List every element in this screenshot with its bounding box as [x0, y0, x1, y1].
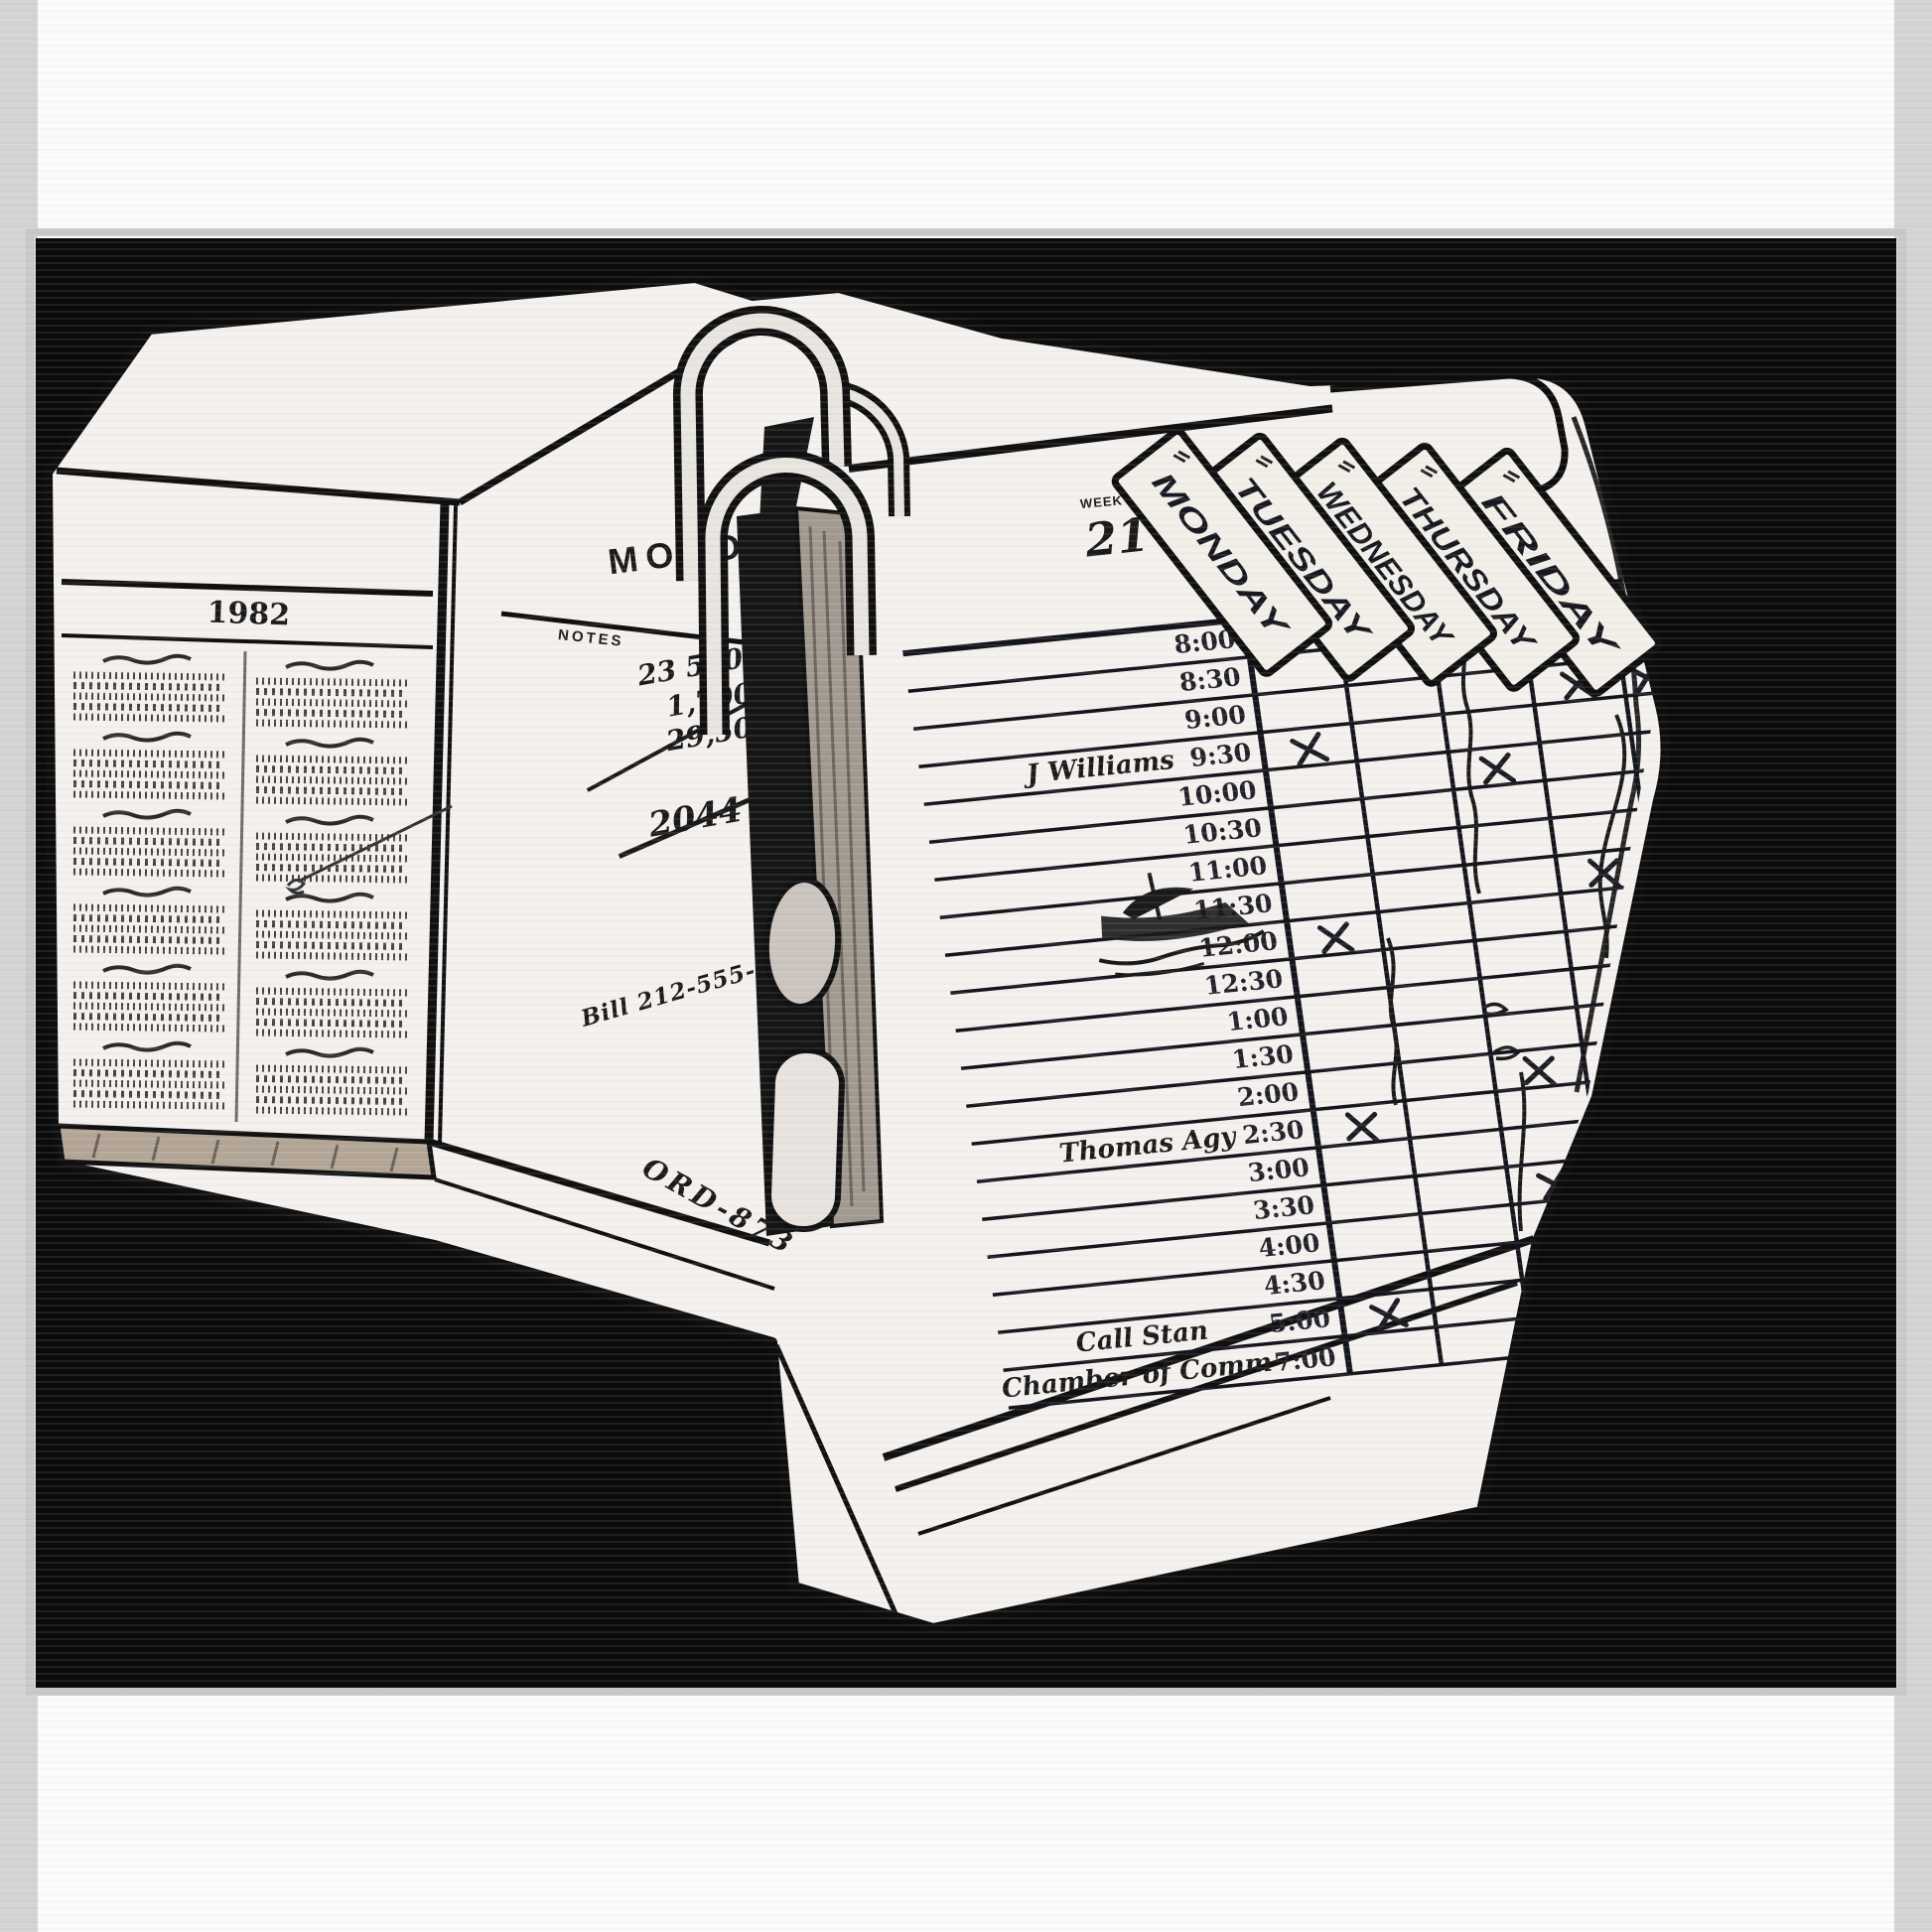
time-label: 3:30	[1251, 1189, 1316, 1225]
time-label: 4:30	[1262, 1265, 1327, 1301]
time-label: 9:00	[1182, 699, 1248, 735]
year-header: 1982	[207, 596, 291, 633]
time-label: 2:30	[1241, 1114, 1307, 1150]
time-label: 1:30	[1230, 1038, 1296, 1074]
spine-clasp	[767, 1049, 843, 1230]
time-label: 8:30	[1177, 661, 1243, 697]
time-label: 2:00	[1235, 1076, 1301, 1112]
time-label: 9:30	[1188, 737, 1254, 772]
planner-illustration: 1982 MONDAY NOTES 23 500 1,700 29,500 .0…	[0, 0, 1932, 1932]
time-label: 5:00	[1267, 1303, 1332, 1338]
planner-scene: 1982 MONDAY NOTES 23 500 1,700 29,500 .0…	[0, 0, 1932, 1932]
time-label: 4:00	[1257, 1227, 1322, 1263]
time-label: 1:00	[1225, 1001, 1291, 1036]
time-label: 3:00	[1246, 1152, 1311, 1187]
time-label-extra: 7:00	[1273, 1341, 1338, 1377]
